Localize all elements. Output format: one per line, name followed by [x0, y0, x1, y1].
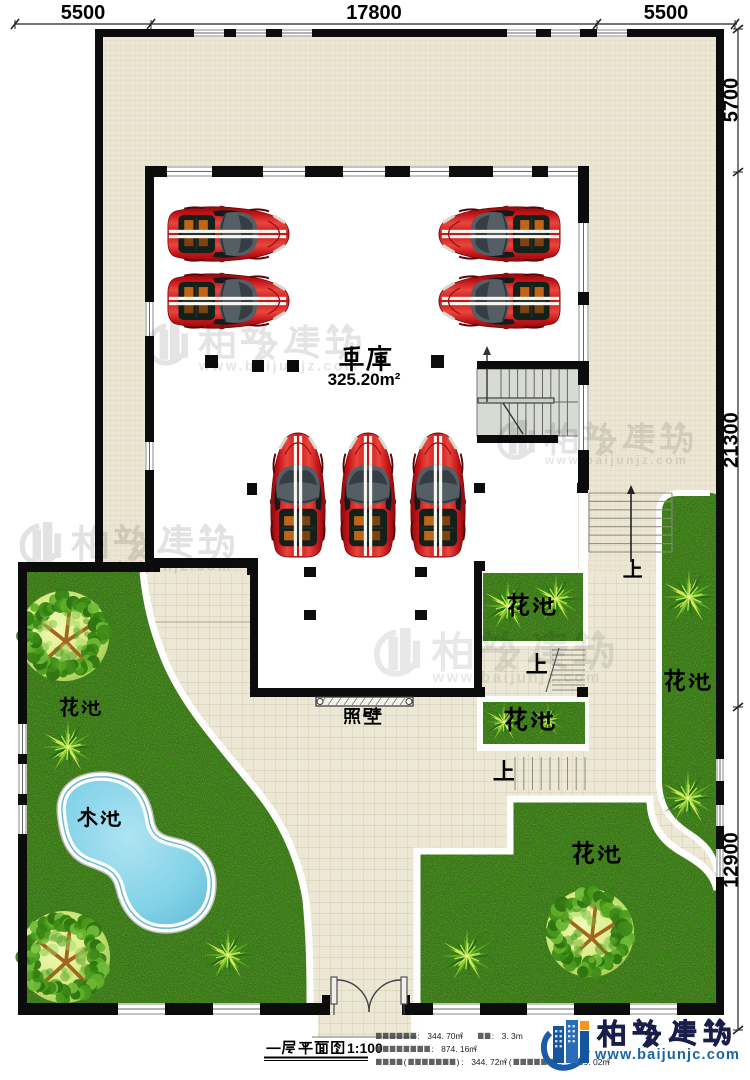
svg-text:www.baijunjz.com: www.baijunjz.com: [544, 453, 689, 467]
svg-text::: :: [461, 1057, 463, 1067]
svg-text:21300: 21300: [721, 412, 743, 468]
svg-text:.: .: [485, 1057, 487, 1067]
svg-text:(: (: [509, 1057, 512, 1067]
svg-text:²: ²: [460, 1031, 463, 1041]
svg-text:5700: 5700: [721, 78, 743, 123]
svg-text:www.baijunjc.com: www.baijunjc.com: [594, 1047, 740, 1063]
svg-text:²: ²: [504, 1057, 507, 1067]
svg-text:.: .: [506, 1031, 508, 1041]
svg-text:.: .: [441, 1031, 443, 1041]
svg-text:): ): [457, 1057, 460, 1067]
svg-text:m: m: [516, 1031, 523, 1041]
svg-text:www.baijunjz.com: www.baijunjz.com: [431, 669, 601, 686]
svg-text::: :: [492, 1031, 494, 1041]
svg-text::: :: [431, 1044, 433, 1054]
svg-text:.: .: [455, 1044, 457, 1054]
svg-text::: :: [417, 1031, 419, 1041]
svg-text:²: ²: [474, 1044, 477, 1054]
svg-text:5500: 5500: [644, 2, 689, 24]
svg-text:www.baijunjz.com: www.baijunjz.com: [198, 357, 360, 373]
svg-text:(: (: [404, 1057, 407, 1067]
svg-text:www.baijunjz.com: www.baijunjz.com: [71, 557, 233, 573]
svg-text:5500: 5500: [61, 2, 106, 24]
svg-text:17800: 17800: [346, 2, 402, 24]
svg-text:12900: 12900: [721, 832, 743, 888]
